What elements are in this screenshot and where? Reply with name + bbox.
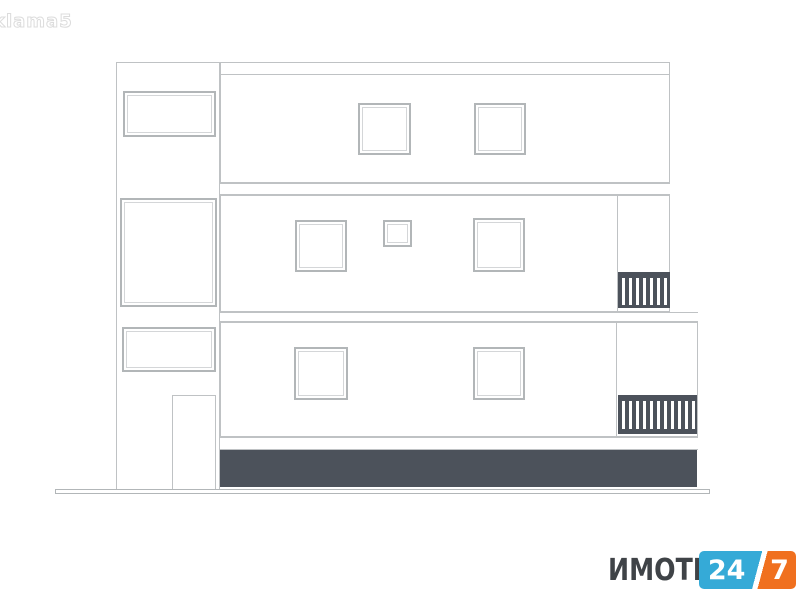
logo-badge-24: 24 (699, 551, 754, 589)
ground-floor-balcony-railing (618, 395, 697, 434)
roof-parapet-line (220, 74, 670, 75)
middle-floor-window-right (473, 218, 525, 272)
middle-floor-balcony-railing (618, 272, 670, 308)
listing-image: klama5 ИМОТИ 24 (0, 0, 800, 600)
base-plinth (220, 450, 697, 487)
middle-floor-window-left (295, 220, 347, 272)
tower-window-top (123, 91, 216, 137)
entrance-door (172, 395, 216, 490)
top-floor-wall (220, 62, 670, 183)
ground-floor-window-left (294, 347, 348, 400)
tower-window-middle (120, 198, 217, 307)
middle-floor-wall (220, 195, 670, 312)
floor-slab-upper (220, 183, 670, 195)
ground-floor-balcony-divider (616, 322, 617, 437)
top-floor-window-left (358, 103, 411, 155)
logo-badge-7: 7 (763, 551, 796, 589)
logo-brand-text: ИМОТИ (608, 552, 692, 590)
middle-floor-window-small (383, 220, 412, 247)
top-floor-window-right (474, 103, 526, 155)
ground-line (55, 489, 710, 494)
building-elevation-drawing (0, 0, 800, 600)
floor-slab-middle (220, 312, 698, 322)
ground-floor-window-right (473, 347, 525, 400)
tower-window-bottom (122, 327, 216, 372)
logo-badge: 24 7 (699, 551, 796, 589)
floor-slab-lower (220, 437, 698, 450)
